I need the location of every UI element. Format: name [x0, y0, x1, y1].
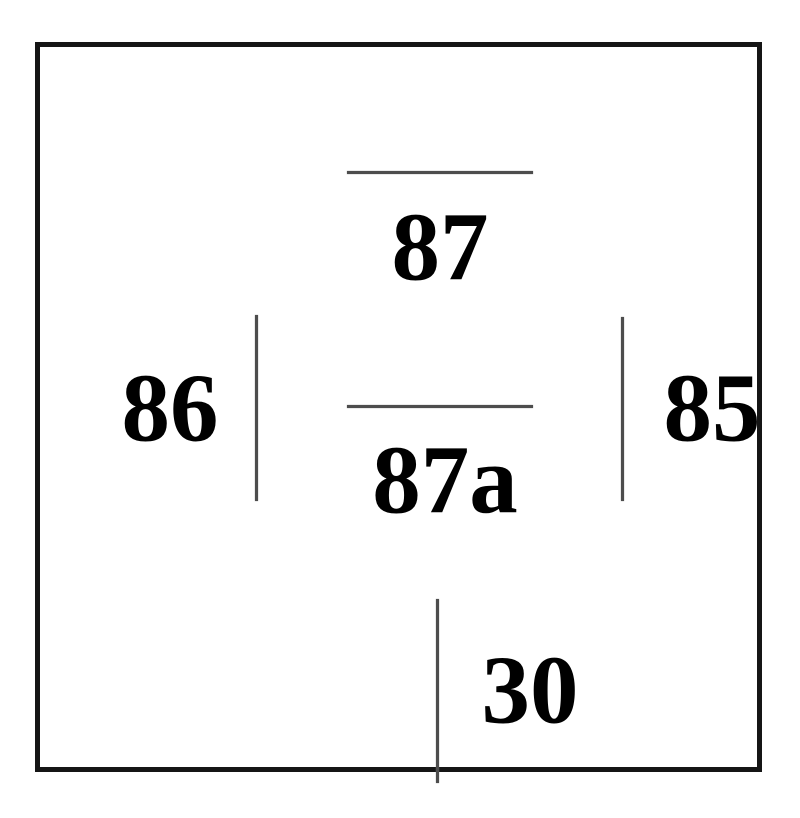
pin-86-label: 86	[122, 360, 219, 457]
relay-body-outline: 87 87a 86 85 30	[35, 42, 762, 772]
pin-86-pin-line	[255, 315, 258, 501]
pin-85-pin-line	[621, 317, 624, 501]
pin-30-label: 30	[482, 642, 579, 739]
relay-pinout-diagram: 87 87a 86 85 30	[0, 0, 800, 818]
pin-87a-label: 87a	[372, 432, 518, 529]
pin-87a-contact-line	[347, 405, 533, 408]
pin-87-label: 87	[392, 199, 489, 296]
pin-85-label: 85	[664, 360, 761, 457]
pin-87-contact-line	[347, 171, 533, 174]
pin-30-pin-line	[436, 599, 439, 783]
